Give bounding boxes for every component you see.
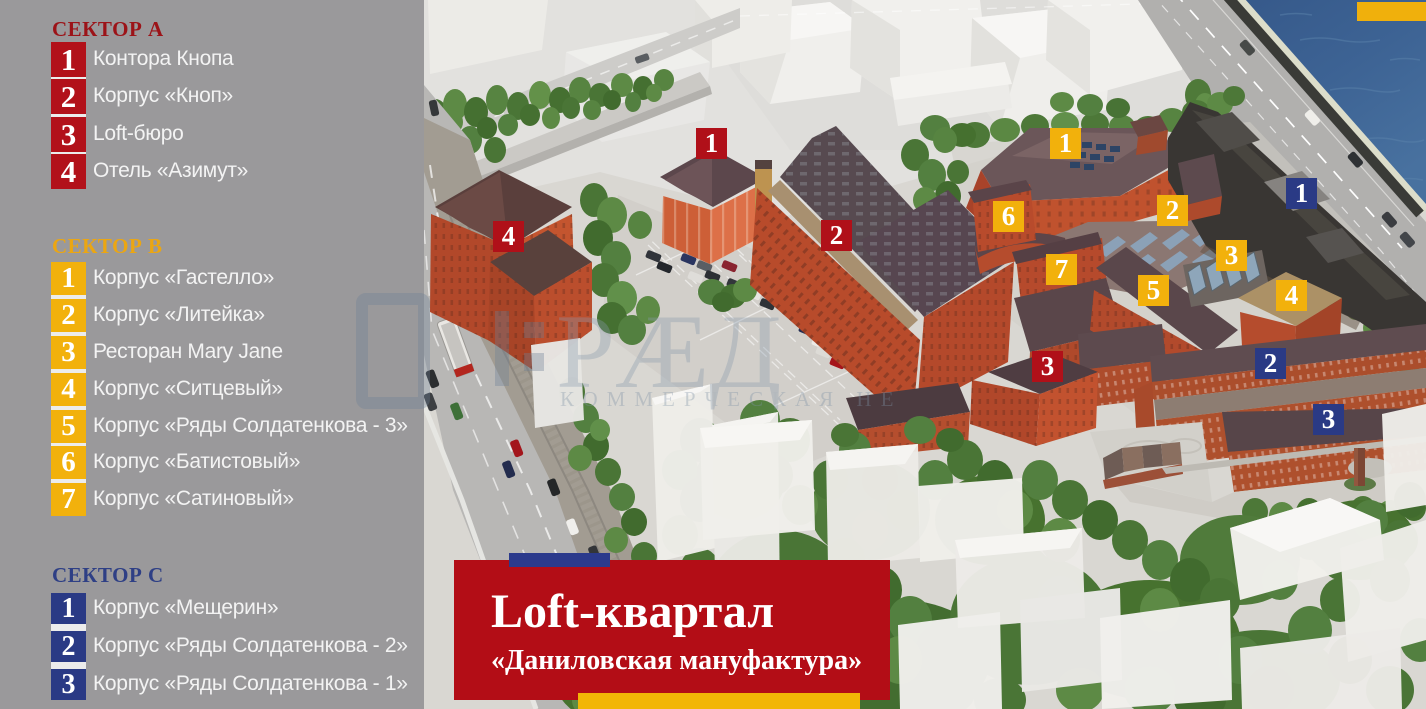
svg-text:КОММЕРЧЕСКАЯ НЕ: КОММЕРЧЕСКАЯ НЕ bbox=[560, 387, 902, 411]
